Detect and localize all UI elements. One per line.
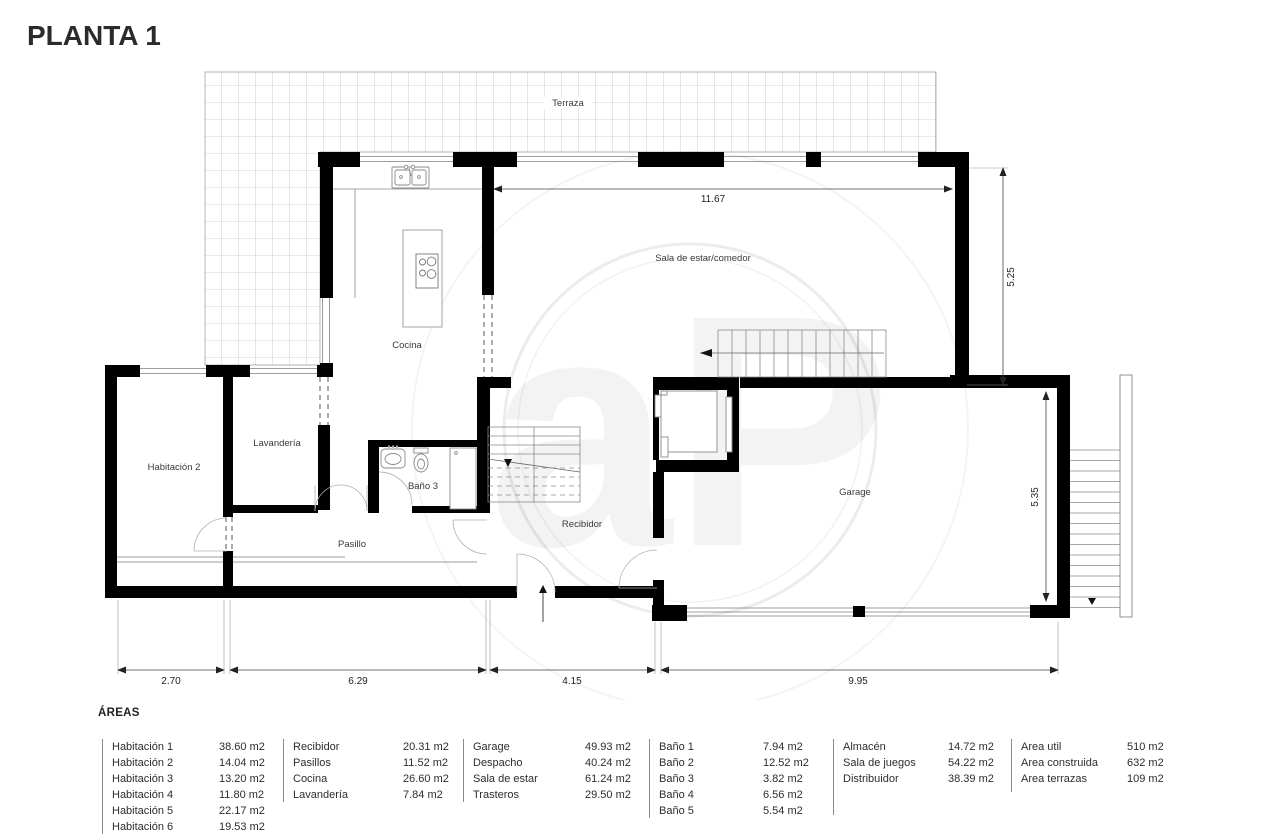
areas-column-habitaciones: Habitación 138.60 m2 Habitación 214.04 m… <box>102 739 265 834</box>
area-row: Almacén14.72 m2 <box>843 739 994 755</box>
areas-column-otros: Almacén14.72 m2 Sala de juegos54.22 m2 D… <box>833 739 994 815</box>
area-row: Sala de juegos54.22 m2 <box>843 755 994 771</box>
area-row: Baño 212.52 m2 <box>659 755 809 771</box>
area-row: Lavandería7.84 m2 <box>293 787 449 803</box>
area-row: Sala de estar61.24 m2 <box>473 771 631 787</box>
room-label-bano3: Baño 3 <box>408 481 438 492</box>
room-label-garage: Garage <box>839 487 871 498</box>
washbasin-icon <box>381 446 405 468</box>
area-row: Habitación 214.04 m2 <box>112 755 265 771</box>
area-row: Baño 33.82 m2 <box>659 771 809 787</box>
area-row: Baño 55.54 m2 <box>659 803 809 819</box>
dimension-bottom-3: 4.15 <box>562 676 582 687</box>
dimension-bottom-2: 6.29 <box>348 676 368 687</box>
area-row: Area terrazas109 m2 <box>1021 771 1164 787</box>
areas-column-banos: Baño 17.94 m2 Baño 212.52 m2 Baño 33.82 … <box>649 739 809 818</box>
area-row: Area construida632 m2 <box>1021 755 1164 771</box>
dimension-bottom-4: 9.95 <box>848 676 868 687</box>
areas-column-servicios: Recibidor20.31 m2 Pasillos11.52 m2 Cocin… <box>283 739 449 802</box>
dimension-bottom-1: 2.70 <box>161 676 181 687</box>
area-row: Baño 46.56 m2 <box>659 787 809 803</box>
exterior-stairs <box>1070 375 1132 617</box>
kitchen-sink-icon <box>392 165 429 188</box>
floor-plan-page: PLANTA 1 aP <box>0 0 1261 834</box>
room-label-lavanderia: Lavandería <box>253 438 301 449</box>
room-label-habitacion2: Habitación 2 <box>148 462 201 473</box>
stove-icon <box>416 254 438 288</box>
floor-plan-drawing: aP <box>0 0 1261 700</box>
area-row: Area util510 m2 <box>1021 739 1164 755</box>
room-label-sala: Sala de estar/comedor <box>655 253 751 264</box>
area-row: Despacho40.24 m2 <box>473 755 631 771</box>
room-label-cocina: Cocina <box>392 340 422 351</box>
area-row: Habitación 313.20 m2 <box>112 771 265 787</box>
area-row: Habitación 619.53 m2 <box>112 819 265 834</box>
area-row: Pasillos11.52 m2 <box>293 755 449 771</box>
dimension-right-lower: 5.35 <box>1030 487 1041 507</box>
shower-icon <box>450 448 476 509</box>
dimension-top: 11.67 <box>701 194 726 205</box>
areas-column-estancias: Garage49.93 m2 Despacho40.24 m2 Sala de … <box>463 739 631 802</box>
areas-column-totales: Area util510 m2 Area construida632 m2 Ar… <box>1011 739 1164 792</box>
areas-heading: ÁREAS <box>98 707 140 719</box>
area-row: Distribuidor38.39 m2 <box>843 771 994 787</box>
area-row: Garage49.93 m2 <box>473 739 631 755</box>
room-label-terraza: Terraza <box>552 98 584 109</box>
area-row: Habitación 411.80 m2 <box>112 787 265 803</box>
area-row: Cocina26.60 m2 <box>293 771 449 787</box>
area-row: Habitación 522.17 m2 <box>112 803 265 819</box>
area-row: Recibidor20.31 m2 <box>293 739 449 755</box>
area-row: Trasteros29.50 m2 <box>473 787 631 803</box>
toilet-icon <box>414 448 428 472</box>
room-label-recibidor: Recibidor <box>562 519 602 530</box>
area-row: Habitación 138.60 m2 <box>112 739 265 755</box>
room-label-pasillo: Pasillo <box>338 539 366 550</box>
dimension-right-upper: 5.25 <box>1006 267 1017 287</box>
area-row: Baño 17.94 m2 <box>659 739 809 755</box>
